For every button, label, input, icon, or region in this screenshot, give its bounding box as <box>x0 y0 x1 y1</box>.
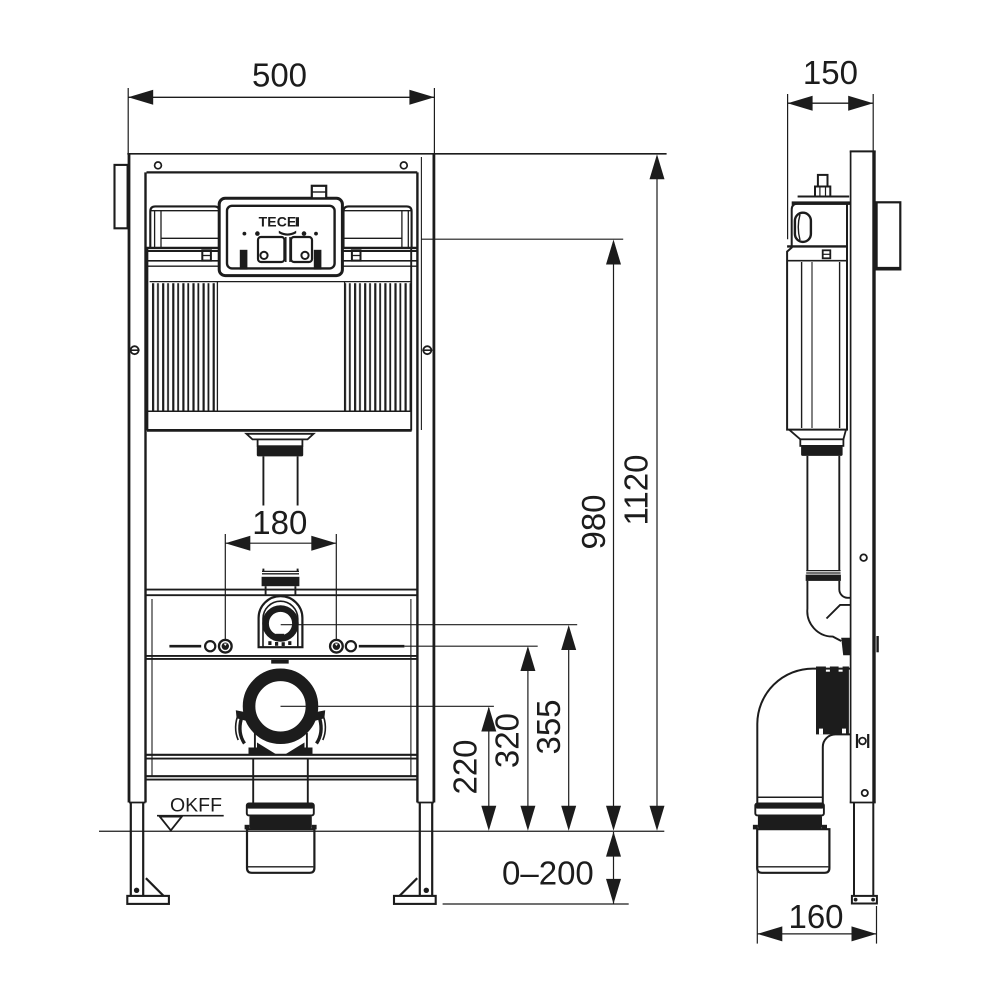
svg-text:160: 160 <box>788 898 843 935</box>
svg-text:150: 150 <box>803 54 858 91</box>
svg-text:1120: 1120 <box>617 455 654 526</box>
svg-text:0–200: 0–200 <box>502 855 594 892</box>
svg-text:320: 320 <box>489 713 526 768</box>
svg-text:500: 500 <box>252 57 307 94</box>
svg-text:180: 180 <box>252 504 307 541</box>
svg-text:355: 355 <box>530 699 567 754</box>
svg-text:220: 220 <box>447 739 484 794</box>
svg-text:TECE: TECE <box>259 213 297 229</box>
svg-text:OKFF: OKFF <box>170 795 222 817</box>
svg-text:980: 980 <box>575 494 612 549</box>
